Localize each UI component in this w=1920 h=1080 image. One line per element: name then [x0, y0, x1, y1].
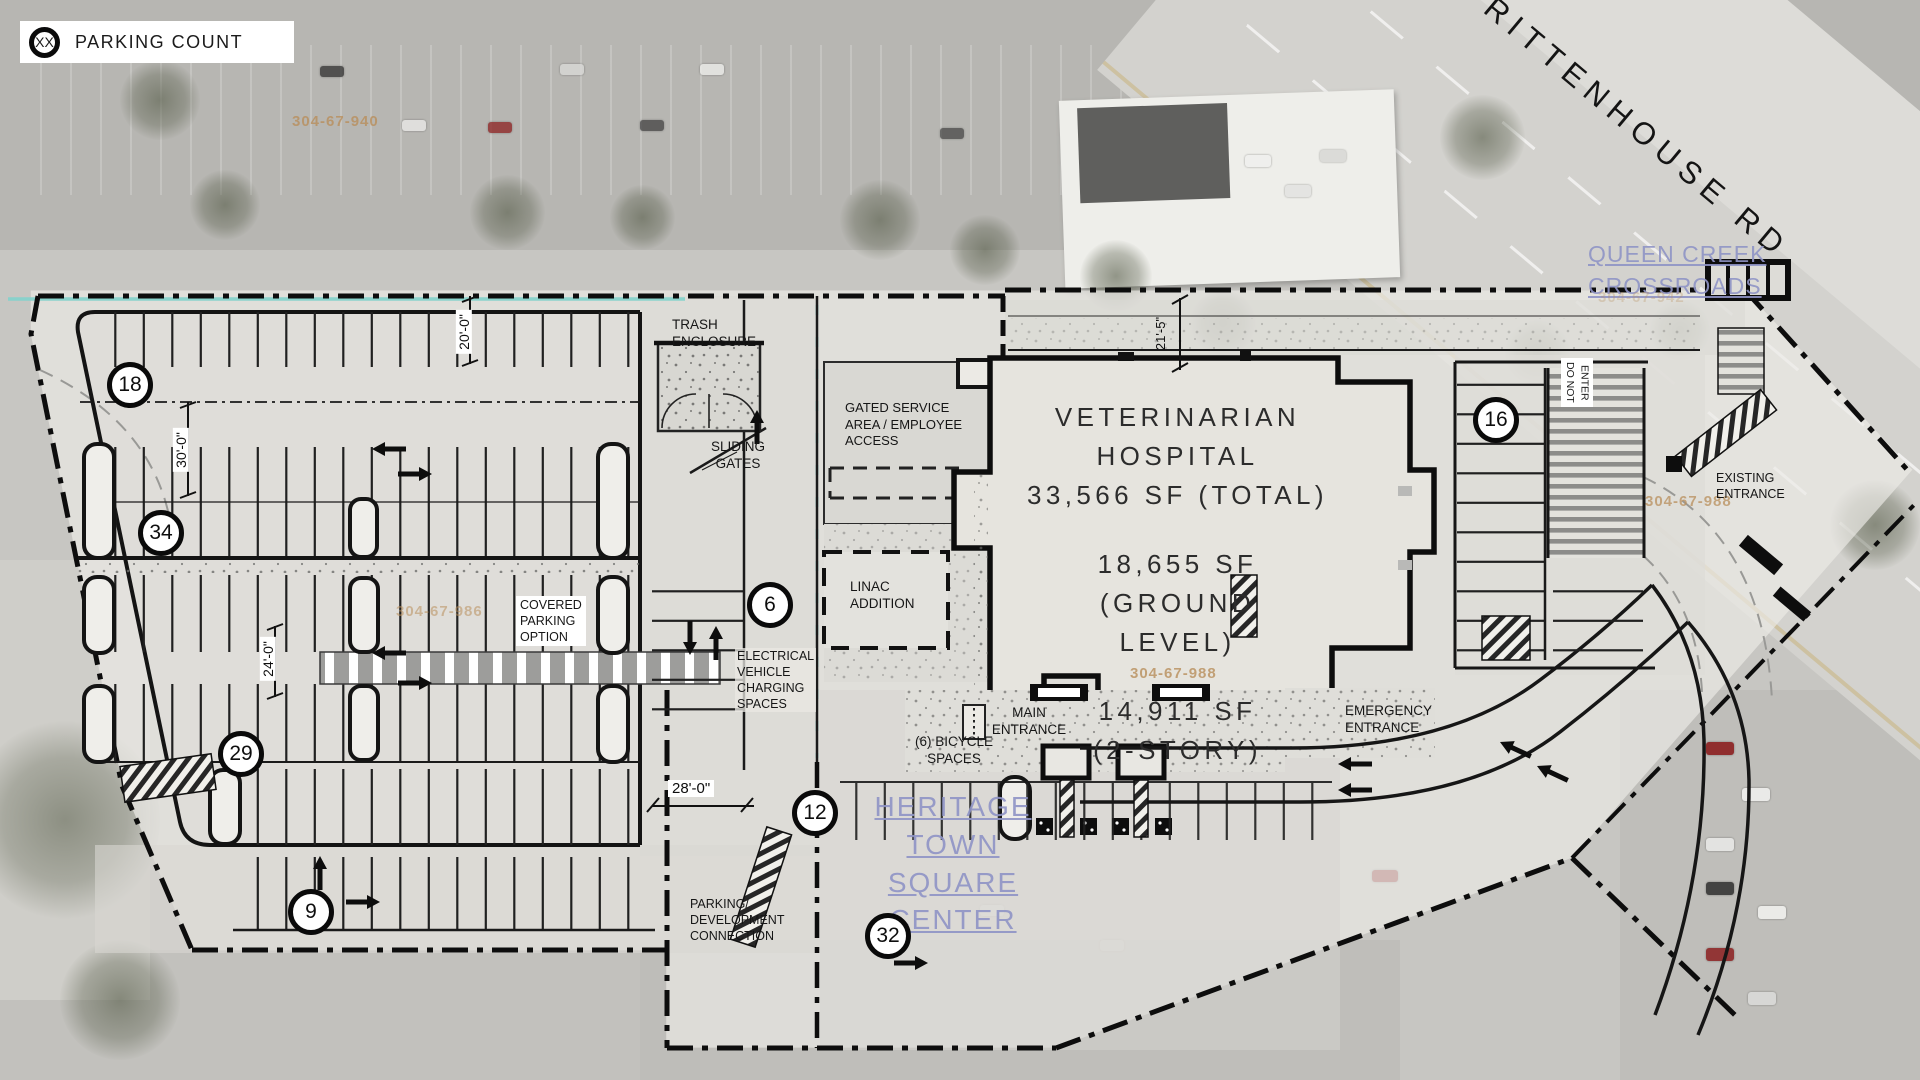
dimension-21ft5: 21'-5": [1153, 313, 1168, 354]
parking-count-34: 34: [138, 510, 184, 556]
parking-count-18: 18: [107, 362, 153, 408]
dimension-28ft: 28'-0": [668, 780, 714, 797]
ev-charging-stalls: [652, 578, 744, 723]
parking-count-29: 29: [218, 731, 264, 777]
north-drive: [1008, 316, 1700, 350]
building-title: VETERINARIAN HOSPITAL 33,566 SF (TOTAL): [1005, 398, 1350, 515]
count-value: 18: [118, 373, 141, 397]
label-existing-entrance: EXISTING ENTRANCE: [1716, 470, 1785, 502]
label-trash-enclosure: TRASH ENCLOSURE: [672, 316, 756, 351]
parking-count-32: 32: [865, 913, 911, 959]
label-covered-parking-option: COVERED PARKING OPTION: [516, 596, 586, 646]
legend-symbol: XX: [35, 34, 54, 50]
parking-count-16: 16: [1473, 397, 1519, 443]
parking-count-legend: XX PARKING COUNT: [20, 21, 294, 63]
label-gated-service-area: GATED SERVICE AREA / EMPLOYEE ACCESS: [845, 400, 962, 450]
label-emergency-entrance: EMERGENCY ENTRANCE: [1345, 702, 1432, 737]
label-linac-addition: LINAC ADDITION: [850, 578, 915, 613]
legend-count-circle: XX: [29, 27, 60, 58]
label-bicycle-spaces: (6) BICYCLE SPACES: [900, 733, 1008, 768]
site-plan-sheet: XX PARKING COUNT RITTENHOUSE RD QUEEN CR…: [0, 0, 1920, 1080]
label-heritage-town-square: HERITAGE TOWN SQUARE CENTER: [828, 788, 1078, 939]
parcel-304-67-986: 304-67-986: [396, 602, 483, 621]
count-value: 6: [764, 593, 776, 617]
building-ground-area: 18,655 SF (GROUND LEVEL): [1005, 545, 1350, 662]
label-do-not-enter: DO NOT ENTER: [1561, 358, 1593, 407]
dimension-24ft: 24'-0": [260, 637, 276, 681]
trash-enclosure: [654, 343, 764, 431]
count-value: 16: [1484, 408, 1507, 432]
dimension-20ft: 20'-0": [456, 310, 472, 354]
parking-count-12: 12: [792, 790, 838, 836]
count-value: 32: [876, 924, 899, 948]
label-parking-development-connection: PARKING/ DEVELOPMENT CONNECTION: [690, 896, 784, 944]
legend-label: PARKING COUNT: [75, 32, 243, 53]
parcel-304-67-942: 304-67-942: [1598, 288, 1685, 307]
label-sliding-gates: SLIDING GATES: [700, 438, 776, 473]
count-value: 12: [803, 801, 826, 825]
dimension-30ft: 30'-0": [173, 428, 189, 472]
count-value: 9: [305, 900, 317, 924]
label-ev-charging-spaces: ELECTRICAL VEHICLE CHARGING SPACES: [735, 648, 816, 712]
count-value: 29: [229, 742, 252, 766]
parcel-304-67-940: 304-67-940: [292, 112, 379, 131]
parking-count-6: 6: [747, 582, 793, 628]
parking-count-9: 9: [288, 889, 334, 935]
count-value: 34: [149, 521, 172, 545]
